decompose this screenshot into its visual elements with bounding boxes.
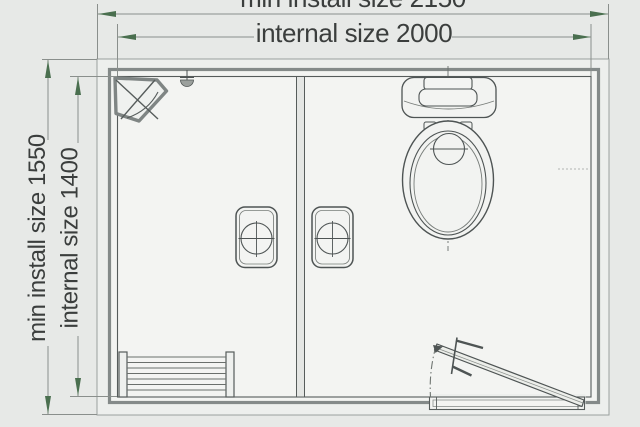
floorplan-drawing: min install size 2150 internal size 2000… (0, 0, 640, 427)
scanned-floorplan-page: min install size 2150 internal size 2000… (0, 0, 640, 427)
washbasin-right (312, 207, 353, 268)
dim-label-top-inner: internal size 2000 (256, 18, 453, 48)
flush-button (419, 89, 477, 106)
washbasin-left (236, 207, 277, 268)
radiator-post (119, 352, 127, 397)
radiator-slats (127, 357, 226, 390)
dim-label-left-inner: internal size 1400 (57, 147, 84, 328)
cabin-floor (110, 70, 599, 403)
partition-wall (297, 77, 305, 398)
dim-label-top-outer: min install size 2150 (240, 0, 466, 13)
dim-label-left-outer: min install size 1550 (24, 134, 51, 342)
radiator-post (226, 352, 234, 397)
flush-lid (424, 78, 472, 90)
unit-walls (110, 70, 599, 403)
